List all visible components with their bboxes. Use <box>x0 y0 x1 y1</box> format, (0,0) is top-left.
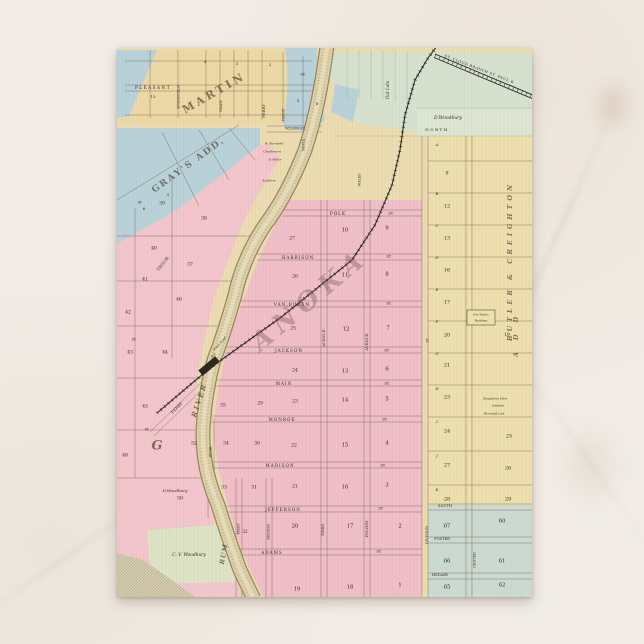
vintage-map-postcard[interactable]: PLEASANTST.WILSON ST.POLKST.HARRISONST.V… <box>117 48 532 597</box>
marble-stain <box>590 75 636 135</box>
marble-countertop-scene: PLEASANTST.WILSON ST.POLKST.HARRISONST.V… <box>0 0 644 644</box>
public-building-box <box>467 310 495 325</box>
plat-map-artwork <box>117 48 532 597</box>
marble-stain <box>555 420 625 510</box>
